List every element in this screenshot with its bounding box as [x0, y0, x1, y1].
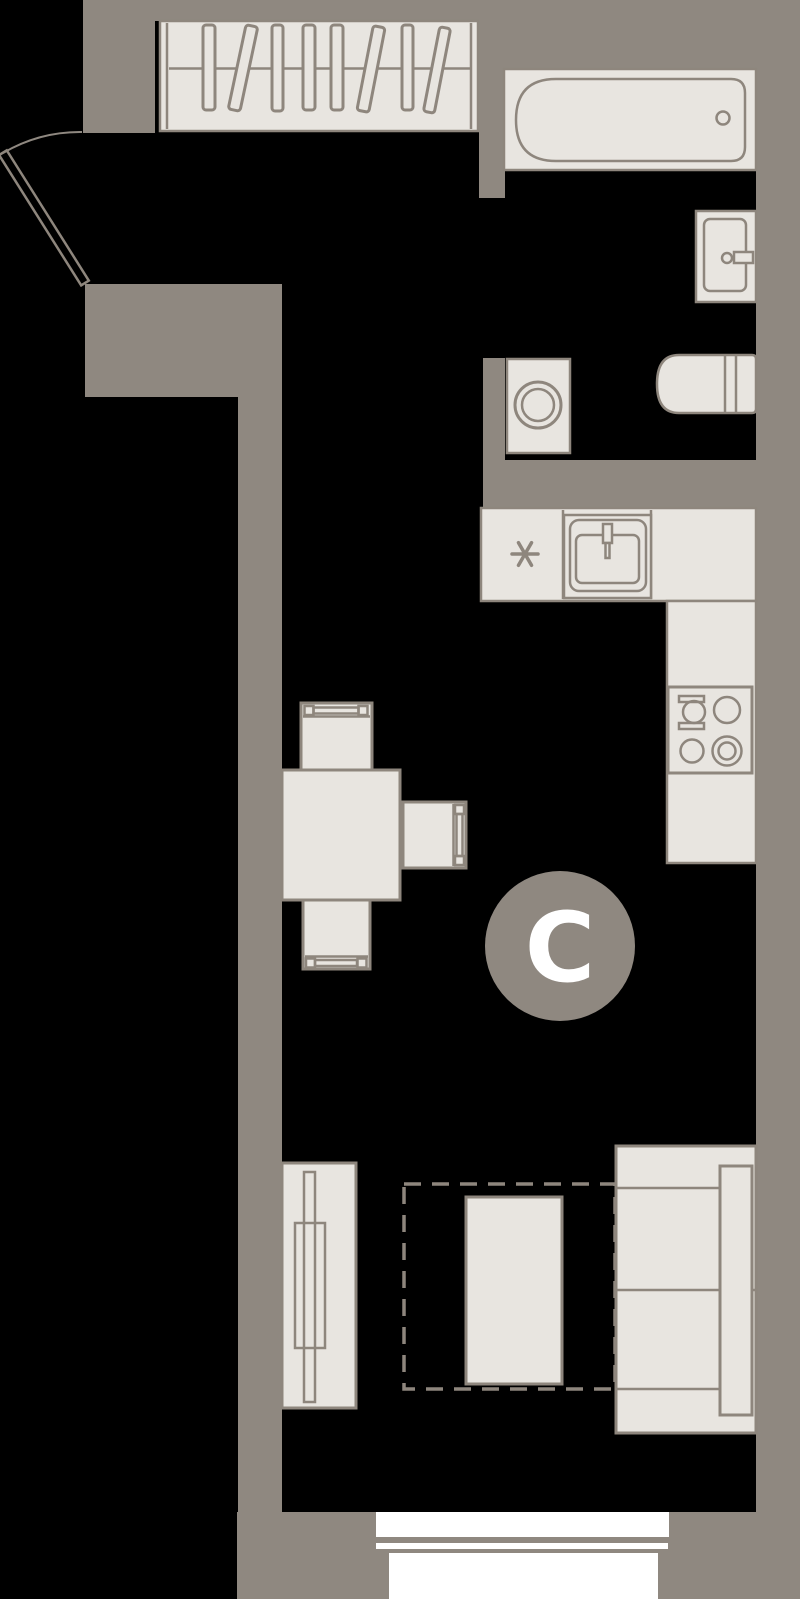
dining-set — [282, 703, 466, 969]
door-leaf-icon — [0, 150, 89, 285]
kitchen-sink-icon — [564, 515, 651, 598]
washing-machine-icon — [507, 359, 570, 453]
toilet-bowl — [657, 355, 756, 413]
wall-top-over-bathtub — [505, 0, 756, 69]
window-frame-strip — [376, 1543, 668, 1549]
kitchen-counter-top — [481, 508, 756, 601]
dining-chair-right — [403, 802, 466, 868]
wall-right-outer — [756, 0, 800, 1599]
bathtub-base — [504, 69, 756, 170]
wall-left-living — [238, 397, 282, 1599]
wardrobe-icon — [160, 21, 478, 131]
floor-plan: С — [0, 0, 800, 1599]
kitchen-faucet-stem — [606, 543, 610, 558]
crib-icon — [466, 1197, 562, 1384]
window-opening — [389, 1553, 658, 1599]
floor-plan-canvas: С — [0, 0, 800, 1599]
wall-bathroom-west-upper — [479, 0, 505, 198]
sofa-backrest — [720, 1166, 752, 1415]
kitchen-counter-side — [667, 601, 756, 863]
room-badge: С — [485, 871, 635, 1021]
window — [376, 1512, 669, 1599]
dining-table — [282, 770, 400, 900]
window-sill — [376, 1512, 669, 1537]
kitchen-faucet — [603, 524, 612, 543]
toilet-icon — [657, 355, 756, 413]
dining-chair-top — [301, 703, 372, 772]
dining-chair-bottom — [303, 900, 370, 969]
wall-top-over-wardrobe — [155, 0, 505, 21]
sofa-icon — [616, 1146, 756, 1433]
wall-hallway-block — [85, 284, 282, 397]
washbasin-faucet-handle — [734, 252, 753, 263]
washbasin-icon — [696, 211, 756, 302]
crib-area — [404, 1184, 615, 1389]
entrance-door — [0, 132, 89, 285]
tv-stand-icon — [282, 1163, 356, 1408]
door-swing-arc-icon — [3, 132, 82, 153]
wall-top-left-column — [83, 0, 155, 133]
bathtub-icon — [504, 69, 756, 170]
wall-bathroom-kitchen-divider — [483, 460, 756, 512]
room-badge-label: С — [525, 892, 595, 1004]
tv-stand-body — [282, 1163, 356, 1408]
